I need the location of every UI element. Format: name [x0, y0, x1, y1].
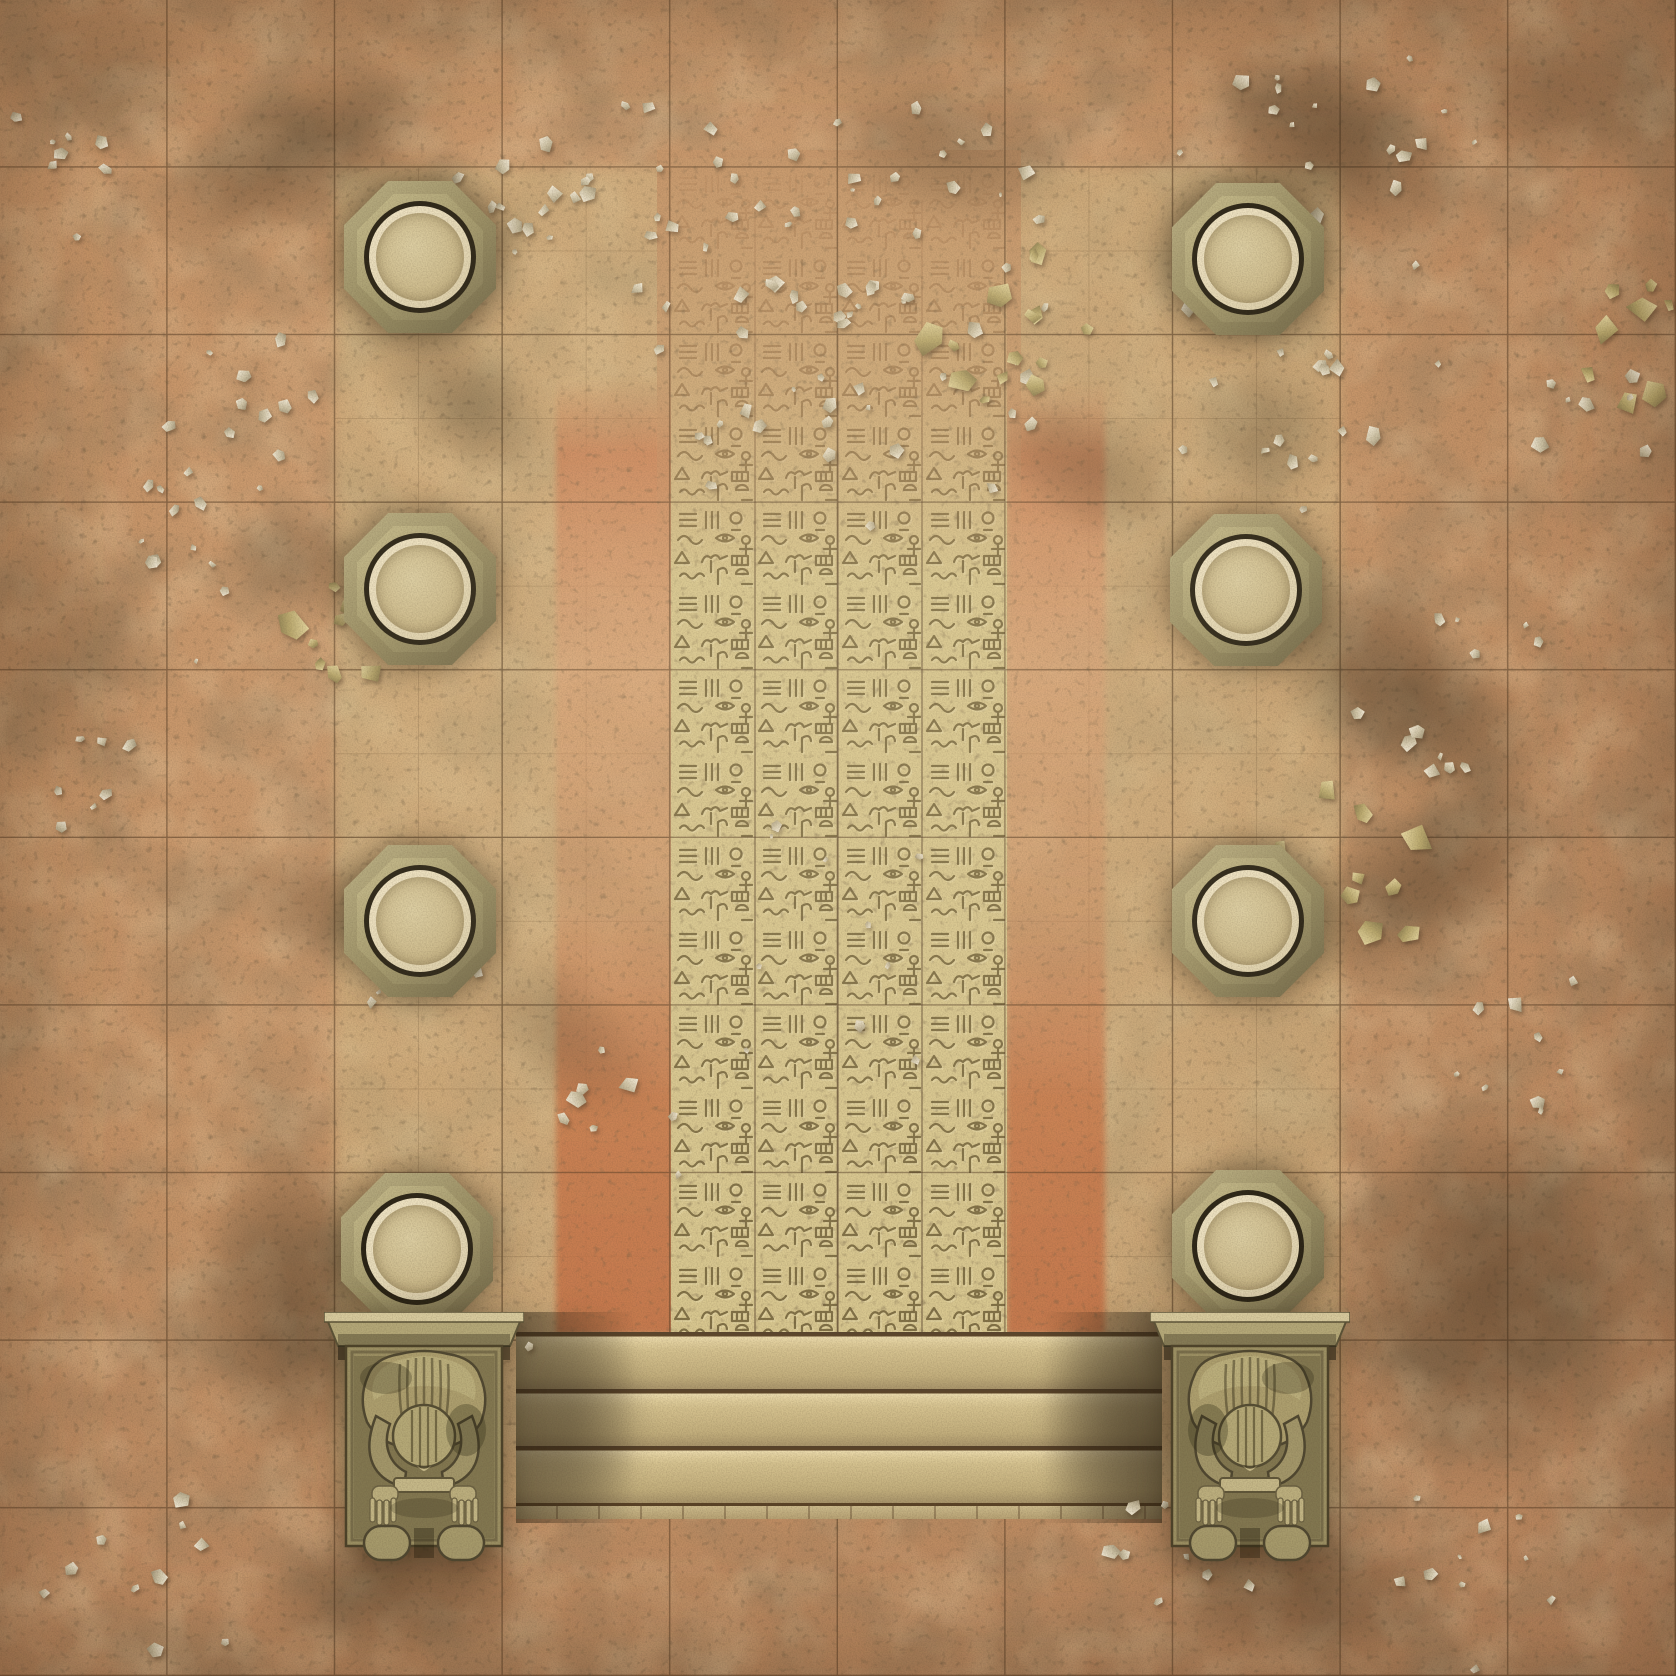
battle-mat: [0, 0, 1676, 1676]
vignette: [0, 0, 1676, 1676]
